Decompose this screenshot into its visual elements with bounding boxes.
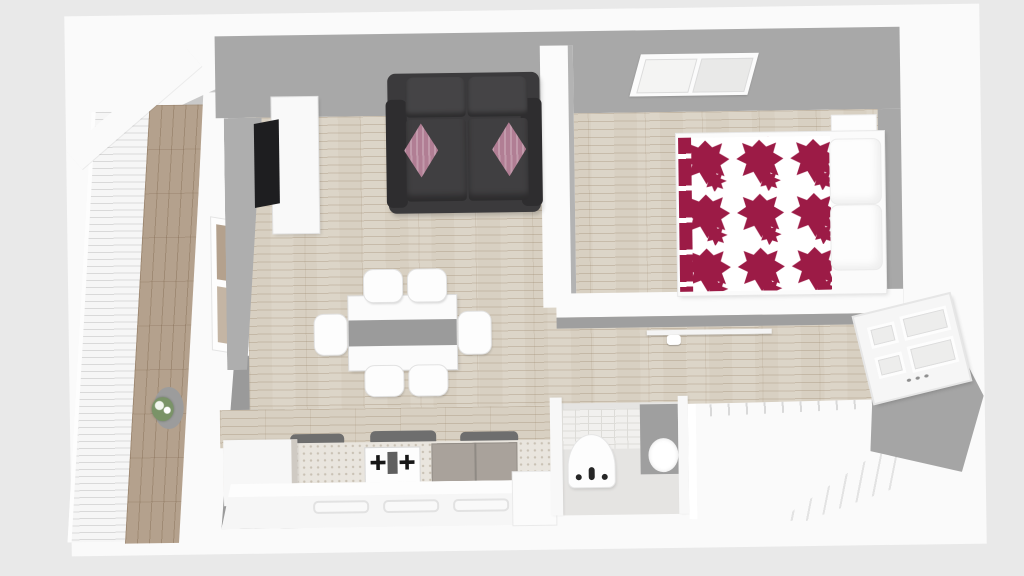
- dining-table[interactable]: [348, 295, 457, 371]
- staircase[interactable]: [688, 399, 902, 523]
- building-shell: [64, 4, 986, 557]
- floorplan-scene: [0, 0, 1024, 576]
- interior-rooms: [215, 27, 907, 530]
- potted-plant[interactable]: [152, 397, 174, 421]
- wall-basin[interactable]: [648, 438, 678, 472]
- stair-edge: [688, 402, 698, 523]
- tv[interactable]: [254, 119, 280, 208]
- door-panel: [899, 305, 952, 341]
- oven-window: [387, 452, 397, 474]
- faucet-spout: [589, 467, 595, 480]
- dining-chair[interactable]: [365, 366, 403, 397]
- dining-chair[interactable]: [458, 311, 491, 353]
- door-panel: [906, 335, 959, 373]
- tap-handle: [576, 474, 582, 480]
- table-runner: [349, 319, 457, 347]
- stove-burner: [370, 455, 385, 470]
- sofa-back-cushion: [405, 77, 466, 118]
- dining-chair[interactable]: [314, 315, 347, 355]
- duvet-fold: [678, 138, 693, 292]
- stove-burner: [399, 455, 414, 470]
- bed-pillow-top[interactable]: [830, 139, 881, 204]
- dining-chair[interactable]: [364, 270, 402, 303]
- bed-pillow-bottom[interactable]: [831, 205, 882, 270]
- shelf-object[interactable]: [667, 335, 681, 345]
- sofa[interactable]: [387, 72, 541, 214]
- sofa-back-cushion: [467, 76, 528, 117]
- bathroom-wall-right: [678, 396, 690, 514]
- drawer-handle: [453, 498, 509, 512]
- drawer-handle: [313, 500, 369, 514]
- door-panel: [874, 351, 906, 379]
- tap-handle: [602, 474, 608, 480]
- door-handle: [904, 372, 931, 384]
- sofa-armrest-left: [385, 100, 408, 208]
- bedroom-divider-wall: [540, 45, 577, 307]
- skylight-window[interactable]: [629, 53, 758, 97]
- patterned-duvet[interactable]: [678, 136, 832, 292]
- door-panel: [867, 321, 899, 349]
- dining-chair[interactable]: [408, 269, 446, 302]
- skylight-pane: [692, 58, 753, 93]
- skylight-pane: [636, 59, 697, 94]
- kitchen-island[interactable]: [221, 480, 557, 530]
- dining-chair[interactable]: [409, 365, 447, 396]
- drawer-handle: [383, 499, 439, 513]
